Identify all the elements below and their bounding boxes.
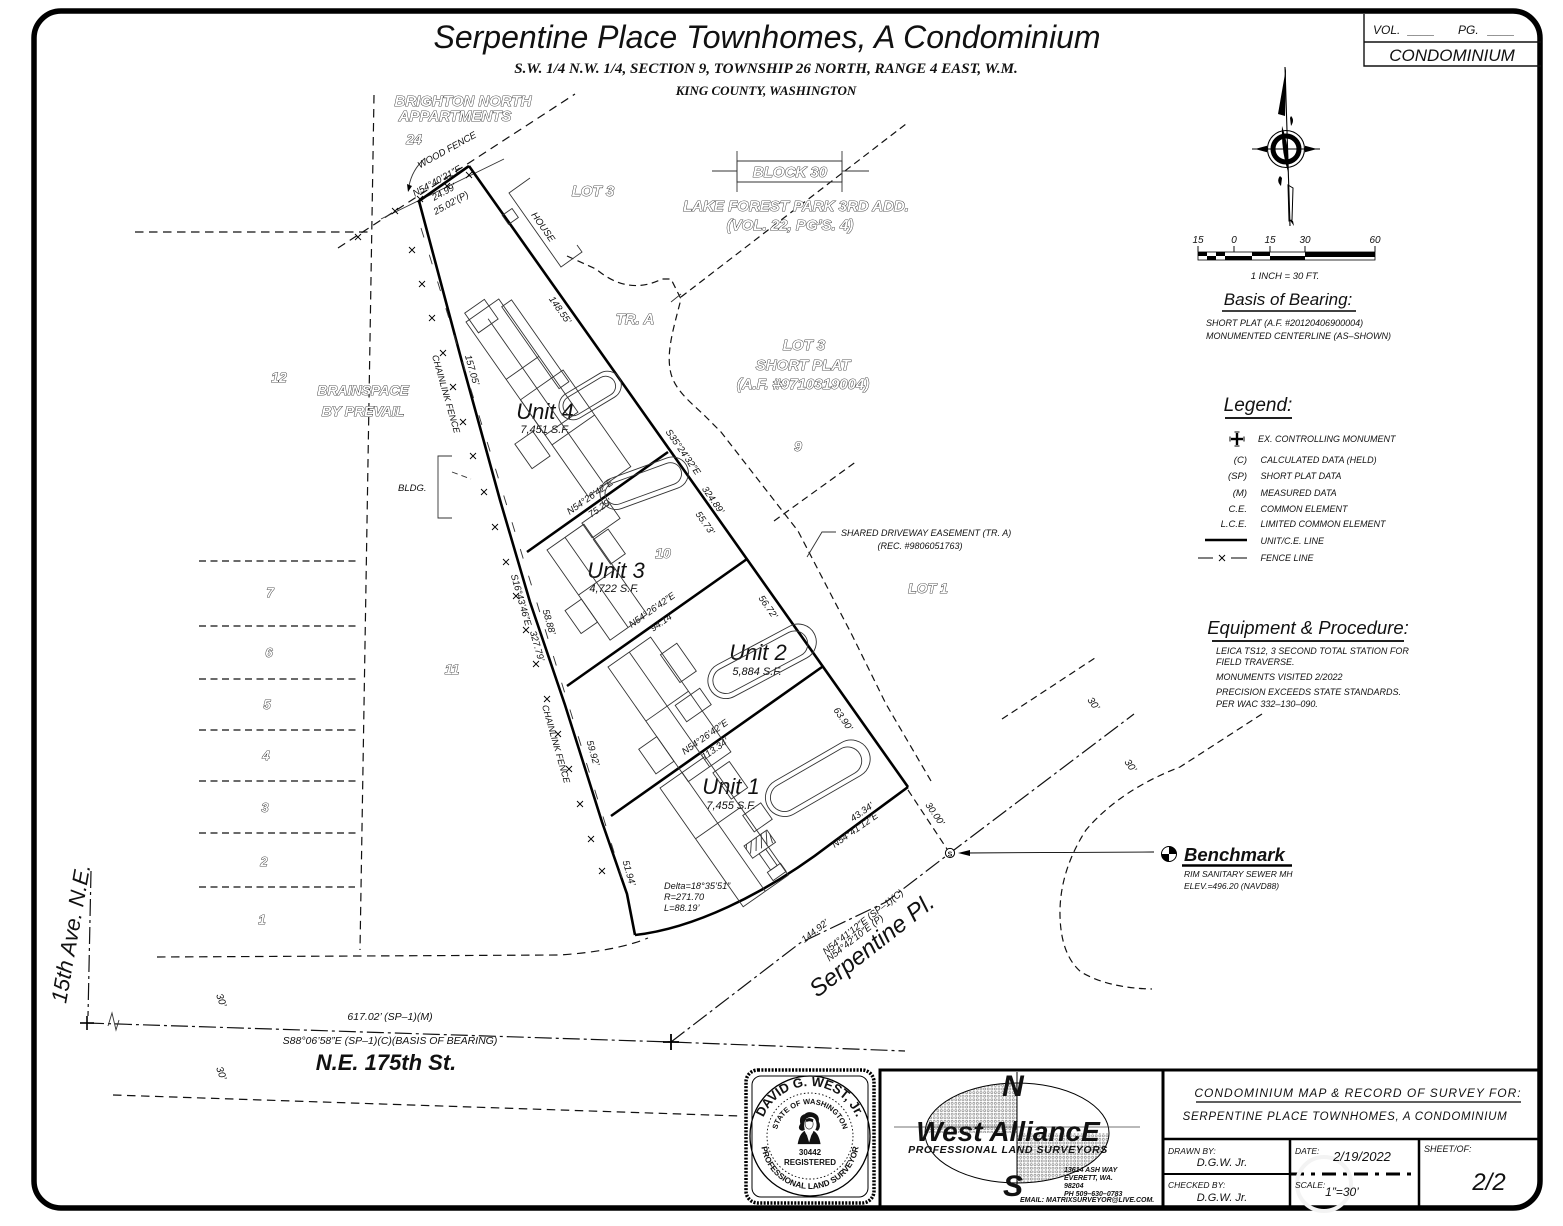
svg-text:98204: 98204	[1064, 1183, 1084, 1190]
svg-text:Basis of Bearing:: Basis of Bearing:	[1224, 290, 1353, 309]
svg-text:S.W. 1/4 N.W. 1/4, SECTION 9,: S.W. 1/4 N.W. 1/4, SECTION 9, TOWNSHIP 2…	[514, 61, 1017, 77]
svg-text:PRECISION EXCEEDS STATE STA: PRECISION EXCEEDS STATE STANDARDS.	[1216, 687, 1401, 697]
svg-text:24: 24	[405, 131, 422, 147]
svg-text:C.E.: C.E.	[1229, 504, 1247, 515]
svg-text:10: 10	[655, 545, 671, 561]
svg-text:7,455 S.F.: 7,455 S.F.	[706, 800, 755, 812]
svg-text:West AlliancE: West AlliancE	[916, 1116, 1101, 1147]
svg-text:APPARTMENTS: APPARTMENTS	[398, 108, 512, 125]
svg-text:EVERETT, WA.: EVERETT, WA.	[1064, 1175, 1113, 1182]
svg-text:____: ____	[1487, 23, 1515, 37]
svg-text:FENCE LINE: FENCE LINE	[1258, 553, 1315, 563]
svg-text:30442: 30442	[799, 1148, 822, 1157]
svg-text:617.02’ (SP–1)(M): 617.02’ (SP–1)(M)	[347, 1011, 432, 1023]
svg-text:CHECKED BY:: CHECKED BY:	[1168, 1180, 1226, 1190]
svg-text:EMAIL: MATRIXSURVEYOR@LIVE.COM: EMAIL: MATRIXSURVEYOR@LIVE.COM.	[1020, 1197, 1154, 1204]
svg-text:(C): (C)	[1234, 455, 1247, 466]
svg-text:Unit 1: Unit 1	[702, 774, 759, 799]
svg-text:FIELD TRAVERSE.: FIELD TRAVERSE.	[1216, 657, 1295, 667]
svg-text:1 INCH = 30 FT.: 1 INCH = 30 FT.	[1251, 271, 1320, 282]
svg-text:D.G.W. Jr.: D.G.W. Jr.	[1197, 1192, 1248, 1204]
svg-text:(VOL. 22, PG’S. 4): (VOL. 22, PG’S. 4)	[727, 217, 854, 234]
svg-text:SERPENTINE PLACE TOWNHOMES, A: SERPENTINE PLACE TOWNHOMES, A CONDOMINIU…	[1183, 1111, 1508, 1123]
svg-text:MONUMENTS VISITED 2/2022: MONUMENTS VISITED 2/2022	[1216, 672, 1343, 682]
svg-text:LIMITED COMMON ELEMENT: LIMITED COMMON ELEMENT	[1258, 519, 1387, 529]
svg-text:S88°06’58”E (SP–1)(C)(BASIS: S88°06’58”E (SP–1)(C)(BASIS OF BEARING)	[283, 1035, 498, 1047]
svg-text:CONDOMINIUM MAP & RECORD OF SU: CONDOMINIUM MAP & RECORD OF SURVEY FOR:	[1194, 1086, 1521, 1100]
svg-text:BRAINSPACE: BRAINSPACE	[317, 382, 409, 398]
svg-text:SCALE:: SCALE:	[1295, 1180, 1326, 1190]
svg-text:LOT 3: LOT 3	[783, 337, 826, 354]
svg-text:MONUMENTED CENTERLINE (AS–SH: MONUMENTED CENTERLINE (AS–SHOWN)	[1206, 331, 1391, 341]
svg-text:D.G.W. Jr.: D.G.W. Jr.	[1197, 1157, 1248, 1169]
svg-text:2: 2	[259, 854, 268, 869]
svg-text:L=88.19’: L=88.19’	[664, 903, 700, 913]
svg-text:15: 15	[1192, 235, 1204, 246]
svg-text:L.C.E.: L.C.E.	[1221, 519, 1247, 530]
svg-text:VOL.: VOL.	[1373, 23, 1400, 37]
svg-text:PROFESSIONAL LAND SURVEYORS: PROFESSIONAL LAND SURVEYORS	[908, 1144, 1108, 1156]
svg-text:Benchmark: Benchmark	[1184, 844, 1286, 865]
svg-text:Equipment & Procedure:: Equipment & Procedure:	[1207, 617, 1409, 638]
svg-text:(A.F. #9710319004): (A.F. #9710319004)	[737, 376, 870, 393]
svg-text:60: 60	[1369, 235, 1381, 246]
svg-text:(REC. #9806051763): (REC. #9806051763)	[877, 541, 962, 551]
svg-text:BLOCK 30: BLOCK 30	[753, 164, 828, 181]
svg-text:RIM SANITARY SEWER MH: RIM SANITARY SEWER MH	[1184, 869, 1293, 879]
svg-text:SHARED DRIVEWAY EASEMENT (T: SHARED DRIVEWAY EASEMENT (TR. A)	[841, 528, 1011, 538]
svg-text:R=271.70: R=271.70	[664, 892, 705, 902]
svg-text:N.E. 175th St.: N.E. 175th St.	[316, 1050, 457, 1075]
svg-text:0: 0	[1231, 235, 1237, 246]
svg-text:SHEET/OF:: SHEET/OF:	[1424, 1144, 1472, 1154]
svg-text:1”=30’: 1”=30’	[1325, 1185, 1359, 1199]
svg-text:BLDG.: BLDG.	[398, 483, 427, 494]
svg-text:EX. CONTROLLING MONUMENT: EX. CONTROLLING MONUMENT	[1258, 434, 1397, 444]
svg-text:CONDOMINIUM: CONDOMINIUM	[1389, 46, 1515, 65]
svg-text:Delta=18°35’51”: Delta=18°35’51”	[664, 881, 731, 891]
svg-text:LEICA TS12, 3 SECOND TOTAL: LEICA TS12, 3 SECOND TOTAL STATION FOR	[1216, 646, 1409, 656]
svg-text:____: ____	[1407, 23, 1435, 37]
svg-text:11: 11	[445, 661, 460, 677]
svg-text:ELEV.=496.20 (NAVD88): ELEV.=496.20 (NAVD88)	[1184, 881, 1279, 891]
svg-text:6: 6	[265, 645, 273, 660]
svg-text:PG.: PG.	[1458, 23, 1479, 37]
svg-text:TR. A: TR. A	[616, 311, 655, 328]
svg-text:SHORT PLAT: SHORT PLAT	[756, 357, 852, 374]
svg-text:9: 9	[794, 438, 802, 454]
svg-text:PER WAC 332–130–090.: PER WAC 332–130–090.	[1216, 699, 1318, 709]
svg-text:DRAWN BY:: DRAWN BY:	[1168, 1146, 1216, 1156]
svg-text:15: 15	[1264, 235, 1276, 246]
svg-text:5,884 S.F.: 5,884 S.F.	[732, 666, 781, 678]
svg-text:(M): (M)	[1233, 488, 1247, 499]
svg-text:4,722 S.F.: 4,722 S.F.	[589, 583, 638, 595]
svg-text:LAKE FOREST PARK 3RD ADD.: LAKE FOREST PARK 3RD ADD.	[683, 198, 909, 215]
svg-text:Legend:: Legend:	[1224, 395, 1293, 416]
svg-text:12: 12	[271, 369, 287, 385]
svg-text:LOT 3: LOT 3	[572, 183, 615, 200]
svg-text:2/19/2022: 2/19/2022	[1332, 1149, 1392, 1164]
svg-text:BY PREVAIL: BY PREVAIL	[322, 403, 405, 419]
svg-text:N: N	[1002, 1070, 1025, 1103]
svg-text:S: S	[948, 852, 953, 859]
svg-text:30: 30	[1299, 235, 1311, 246]
svg-text:SHORT PLAT DATA: SHORT PLAT DATA	[1258, 471, 1341, 481]
svg-text:COMMON ELEMENT: COMMON ELEMENT	[1258, 504, 1349, 514]
svg-text:SHORT PLAT (A.F. #201204069: SHORT PLAT (A.F. #20120406900004)	[1206, 318, 1363, 328]
svg-text:LOT 1: LOT 1	[908, 580, 948, 596]
svg-text:3: 3	[261, 800, 269, 815]
svg-text:7: 7	[266, 585, 274, 600]
svg-text:2/2: 2/2	[1471, 1169, 1505, 1196]
svg-text:DATE:: DATE:	[1295, 1146, 1320, 1156]
svg-text:5: 5	[263, 697, 271, 712]
svg-text:Serpentine Place Townhomes, A: Serpentine Place Townhomes, A Condominiu…	[433, 19, 1100, 55]
svg-text:13614 ASH WAY: 13614 ASH WAY	[1064, 1167, 1119, 1174]
svg-text:UNIT/C.E. LINE: UNIT/C.E. LINE	[1258, 536, 1325, 546]
svg-text:MEASURED DATA: MEASURED DATA	[1258, 488, 1337, 498]
svg-text:KING COUNTY, WASHINGTON: KING COUNTY, WASHINGTON	[675, 83, 857, 98]
svg-text:Unit 2: Unit 2	[729, 640, 786, 665]
svg-text:REGISTERED: REGISTERED	[784, 1158, 836, 1167]
svg-text:(SP): (SP)	[1228, 471, 1247, 482]
svg-text:1: 1	[258, 912, 265, 927]
svg-text:CALCULATED DATA (HELD): CALCULATED DATA (HELD)	[1258, 455, 1377, 465]
svg-text:4: 4	[261, 748, 270, 763]
